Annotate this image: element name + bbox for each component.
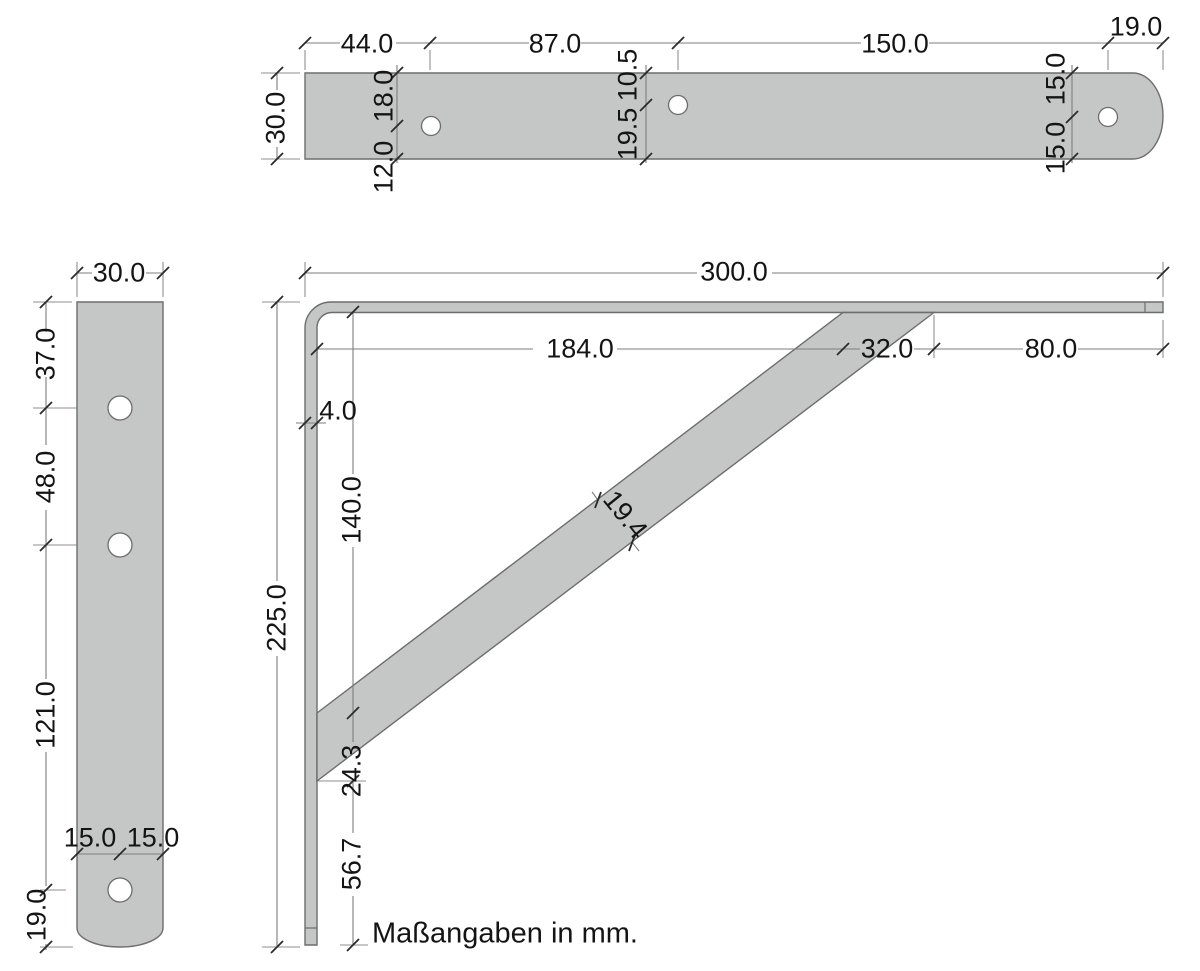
dim-hole3-bottom: 15.0 <box>1043 122 1070 175</box>
dim-front-left-seg1: 140.0 <box>339 476 366 544</box>
dim-top-seg2: 87.0 <box>529 31 582 58</box>
dim-front-thickness: 4.0 <box>319 398 357 425</box>
dim-hole2-top: 10.5 <box>615 49 642 102</box>
dim-front-total-height: 225.0 <box>264 584 291 652</box>
units-note: Maßangaben in mm. <box>372 920 638 949</box>
technical-drawing: 44.0 87.0 150.0 19.0 30.0 18.0 12.0 10.5… <box>0 0 1200 971</box>
dim-side-seg2: 48.0 <box>33 451 60 504</box>
dim-front-left-seg2: 24.3 <box>339 745 366 798</box>
dim-front-top-seg2: 32.0 <box>861 336 914 363</box>
side-view-hole-2 <box>108 533 132 557</box>
dim-side-seg3: 121.0 <box>33 681 60 749</box>
dim-top-seg1: 44.0 <box>341 31 394 58</box>
dim-front-total-width: 300.0 <box>700 259 768 286</box>
side-view-hole-1 <box>108 396 132 420</box>
top-view-hole-3 <box>1099 108 1118 127</box>
dim-side-seg4: 19.0 <box>24 889 51 942</box>
dim-top-width: 30.0 <box>263 92 290 145</box>
top-view-outline <box>305 73 1163 159</box>
dim-hole1-top: 18.0 <box>371 70 398 123</box>
side-view-hole-3 <box>108 878 132 902</box>
front-view-end-cap-lines <box>305 302 1145 928</box>
dim-hole3-top: 15.0 <box>1043 53 1070 106</box>
top-view-hole-1 <box>422 117 441 136</box>
dim-front-top-seg1: 184.0 <box>546 336 614 363</box>
front-view-brace <box>317 313 934 782</box>
dim-side-seg1: 37.0 <box>33 328 60 381</box>
dim-front-left-seg3: 56.7 <box>339 838 366 891</box>
dim-side-hole-left: 15.0 <box>64 825 117 852</box>
dim-top-seg3: 150.0 <box>861 31 929 58</box>
dim-front-top-seg3: 80.0 <box>1025 336 1078 363</box>
dim-top-seg4: 19.0 <box>1110 14 1163 41</box>
dim-side-width: 30.0 <box>93 260 146 287</box>
drawing-geometry <box>0 0 1200 971</box>
dim-hole1-bottom: 12.0 <box>371 141 398 194</box>
top-view-hole-2 <box>669 96 688 115</box>
dim-hole2-bottom: 19.5 <box>615 108 642 161</box>
dim-side-hole-right: 15.0 <box>127 825 180 852</box>
